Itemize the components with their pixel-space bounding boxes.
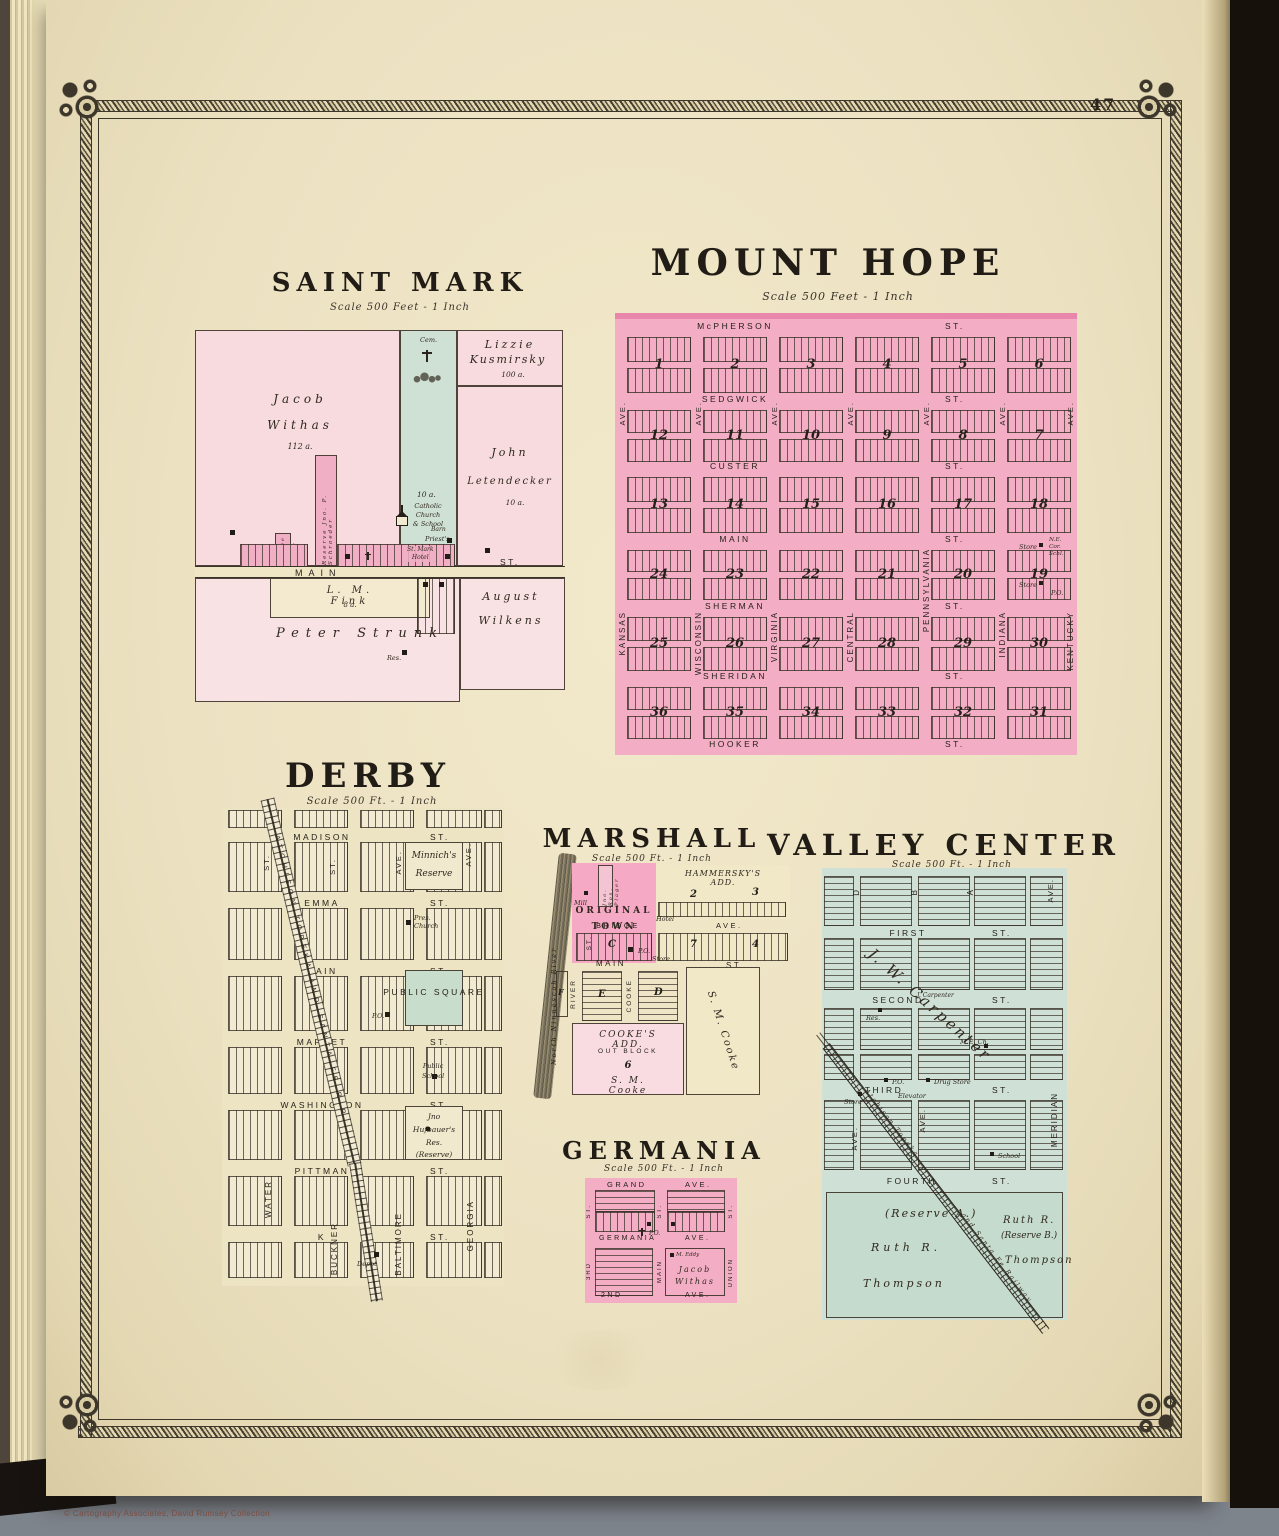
street-vertical: ST. [586, 1204, 592, 1219]
reserve-label: Reserve Jno. P. Schroeder [322, 462, 334, 565]
avenue-name: WATER [264, 1180, 273, 1218]
block: 11 [703, 410, 767, 462]
avenue-vertical: AVE. [464, 842, 473, 867]
hufbauer-reserve: Jno Hufbauer's Res. (Reserve) [405, 1106, 463, 1160]
town-block [484, 976, 502, 1031]
owner-label: Withas [267, 418, 333, 432]
street-vertical: ST. [657, 1204, 663, 1219]
building-square [385, 1012, 390, 1017]
avenue-name: BUCKNER [330, 1222, 339, 1275]
block: 16 [855, 477, 919, 533]
block-number: 7 [1034, 428, 1043, 443]
block-number: 17 [954, 497, 972, 512]
owner-label: John [491, 446, 528, 459]
street-suffix: ST. [992, 1085, 1012, 1095]
hotel-label: St. Mark Hotel [407, 546, 434, 562]
derby-map: MADISONST.EMMAST.MAINST.MARKETST.WASHING… [222, 808, 504, 1286]
town-block [484, 1242, 502, 1278]
block-number: 4 [882, 357, 891, 372]
street-suffix: AVE. [716, 921, 743, 930]
town-block [484, 1176, 502, 1226]
plager-reserve-strip: Jno. Ros. Plager [598, 865, 613, 907]
street-suffix: AVE. [685, 1180, 712, 1189]
parcel-cemetery-church [400, 330, 457, 566]
street-suffix: ST. [945, 739, 965, 749]
frame-corner-ornament [1128, 74, 1182, 128]
copyright: © Cartography Associates, David Rumsey C… [64, 1509, 270, 1518]
page-number: 47 [1090, 95, 1116, 114]
block: 18 [1007, 477, 1071, 533]
block-number: 24 [650, 567, 668, 582]
owner-label: August [482, 590, 539, 603]
building-square [984, 1044, 988, 1048]
town-block [294, 1242, 348, 1278]
derby-scale: Scale 500 Ft. - 1 Inch [307, 796, 438, 807]
book-spine-shadow [0, 0, 10, 1482]
mill-label: Mill [574, 899, 587, 907]
street-suffix: ST. [500, 557, 520, 567]
block-lots [627, 368, 691, 393]
block: 23 [703, 550, 767, 600]
withas-block: M. Eddy Jacob Withas [665, 1248, 725, 1296]
street-vertical: COOKE [626, 979, 633, 1012]
residence-label: Res. [387, 654, 401, 662]
street-name: McPHERSON [655, 321, 815, 331]
town-block [1030, 938, 1063, 990]
frame-bottom [78, 1426, 1182, 1438]
street-vertical: RIVER [570, 979, 577, 1009]
street-name: 2ND [601, 1292, 623, 1299]
street-name: FIRST [848, 928, 968, 938]
town-block [228, 976, 282, 1031]
street-name: SHERMAN [655, 601, 815, 611]
street-vertical: MAIN [657, 1260, 663, 1283]
owner-label: Kusmirsky [470, 353, 546, 366]
school-label: School [998, 1152, 1020, 1160]
street-name: MAIN [596, 959, 626, 968]
block: 21 [855, 550, 919, 600]
block-number: 3 [806, 357, 815, 372]
block-number: 30 [1030, 636, 1048, 651]
owner-label: Lizzie [485, 338, 535, 351]
street-vertical: ST. [728, 1204, 734, 1219]
block: 3 [779, 337, 843, 393]
germania-scale: Scale 500 Ft. - 1 Inch [604, 1164, 724, 1174]
town-block [484, 1110, 502, 1160]
block: 28 [855, 617, 919, 671]
street-suffix: ST. [945, 671, 965, 681]
store-label: Store [844, 1098, 862, 1106]
street-name: PITTMAN [252, 1166, 392, 1176]
acreage-label: 10 a. [506, 498, 525, 507]
town-block [824, 876, 854, 926]
block-lots [667, 1190, 725, 1212]
street-suffix: ST. [992, 1176, 1012, 1186]
derby-title: DERBY [285, 756, 451, 796]
block-number: 28 [878, 636, 896, 651]
book-page-edges [10, 0, 32, 1480]
town-block [294, 842, 348, 892]
mount-hope-title: MOUNT HOPE [651, 242, 1006, 284]
block-lots [1007, 508, 1071, 533]
block: 1 [627, 337, 691, 393]
block: 12 [627, 410, 691, 462]
street-suffix: ST. [430, 898, 450, 908]
town-block [228, 1176, 282, 1226]
owner-label: M. Eddy [676, 1252, 699, 1258]
minnich-reserve: Minnich's Reserve [405, 842, 463, 890]
block: 4 [855, 337, 919, 393]
street-name: THIRD [824, 1085, 944, 1095]
street-name: BRIDGE [596, 921, 640, 930]
avenue-suffix: AVE. [618, 401, 627, 426]
building-square [670, 1253, 674, 1257]
block: 22 [779, 550, 843, 600]
block: 15 [779, 477, 843, 533]
street-name: SEDGWICK [655, 394, 815, 404]
block-number: 14 [726, 497, 744, 512]
street-suffix: ST. [430, 1166, 450, 1176]
street-suffix: ST. [945, 534, 965, 544]
block-lots [779, 368, 843, 393]
block: 24 [627, 550, 691, 600]
street-name: SHERIDAN [655, 671, 815, 681]
church-cross-mark [367, 552, 369, 560]
owner-label: Withas [675, 1277, 715, 1286]
town-block [228, 908, 282, 960]
town-block [426, 810, 482, 828]
hotel-label: Hotel [656, 915, 674, 923]
avenue-name: WISCONSIN [694, 611, 703, 675]
avenue-suffix: AVE. [918, 1108, 927, 1133]
avenue-letter: D [852, 888, 861, 896]
block: 33 [855, 687, 919, 739]
street-name: FOURTH [852, 1176, 972, 1186]
acreage-label: 8 a. [343, 601, 356, 609]
public-square: PUBLIC SQUARE [405, 970, 463, 1026]
hammersky-addition: HAMMERSKY'S ADD. 2 3 [656, 865, 790, 919]
barn-label: Barn [431, 526, 446, 533]
cemetery-label: Cem. [420, 336, 437, 344]
avenue-letter: A [966, 888, 975, 895]
saint-mark-title: SAINT MARK [272, 268, 528, 298]
block: 13 [627, 477, 691, 533]
germania-title: GERMANIA [562, 1136, 766, 1165]
post-office-label: P.O. [1051, 589, 1063, 597]
avenue-suffix: AVE. [694, 401, 703, 426]
block-lots [1007, 368, 1071, 393]
block-letter: D [654, 987, 663, 998]
reserve-label: Jno Hufbauer's Res. (Reserve) [413, 1111, 455, 1162]
avenue-suffix: AVE. [998, 401, 1007, 426]
owner-label: S. M. Cooke [601, 1076, 656, 1096]
block-lots [931, 368, 995, 393]
cookes-addition: COOKE'S ADD. OUT BLOCK 6 S. M. Cooke [572, 1023, 684, 1095]
trees-icon [411, 372, 441, 384]
building-square [406, 920, 411, 925]
town-block [918, 1054, 970, 1080]
building-square [884, 1078, 888, 1082]
frame-corner-ornament [1128, 1384, 1182, 1438]
avenue-letter: B [910, 888, 919, 895]
block-number: 21 [878, 567, 896, 582]
avenue-vertical: ST. [328, 858, 337, 875]
avenue-name: GEORGIA [466, 1200, 475, 1251]
depot-label: Depot [357, 1260, 377, 1268]
town-block [824, 938, 854, 990]
avenue-name: PENNSYLVANIA [922, 548, 931, 632]
building-square [1039, 581, 1043, 585]
schroeder-reserve-strip: Reserve Jno. P. Schroeder [315, 455, 337, 566]
owner-label: Ruth R. [1003, 1215, 1055, 1226]
town-block [484, 842, 502, 892]
saint-mark-scale: Scale 500 Feet - 1 Inch [330, 302, 470, 313]
street-name: CUSTER [655, 461, 815, 471]
block-number: 2 [690, 889, 697, 900]
owner-label: Wilkens [478, 614, 543, 627]
block-number: 15 [802, 497, 820, 512]
street-vertical: 3RD [586, 1262, 592, 1280]
block-number: 11 [726, 428, 744, 443]
frame-right [1170, 100, 1182, 1438]
avenue-name: BALTIMORE [394, 1212, 403, 1276]
block: 29 [931, 617, 995, 671]
street-name: MAIN [295, 568, 342, 578]
block-number: 27 [802, 636, 820, 651]
block-number: 35 [726, 705, 744, 720]
cemetery-cross-icon [426, 350, 428, 362]
block-lots [703, 508, 767, 533]
street-suffix: ST. [945, 461, 965, 471]
avenue-suffix: AVE. [1046, 878, 1055, 903]
building-square [990, 1152, 994, 1156]
owner-label: J. Carpenter [917, 992, 954, 999]
block-number: 36 [650, 705, 668, 720]
block-number: 12 [650, 428, 668, 443]
marshall-map: North Ninnescah River ORIGINAL TOWN Jno.… [540, 855, 795, 1100]
block: 36 [627, 687, 691, 739]
street-suffix: ST. [945, 394, 965, 404]
block-number: 32 [954, 705, 972, 720]
block-number: 6 [625, 1060, 632, 1071]
owner-label: Jacob [679, 1265, 711, 1274]
reserve-label: (Reserve B.) [1001, 1231, 1057, 1241]
main-street-lots [337, 544, 455, 568]
avenue-vertical: ST. [262, 854, 271, 871]
street-suffix: ST. [430, 1037, 450, 1047]
block-lots [658, 902, 786, 917]
block-number: 26 [726, 636, 744, 651]
frame-top [78, 100, 1182, 112]
street-name: EMMA [252, 898, 392, 908]
town-block [974, 938, 1026, 990]
acreage-label: 100 a. [501, 370, 525, 379]
post-office-label: P.O. [372, 1012, 384, 1020]
building-square [447, 538, 452, 543]
town-block [974, 876, 1026, 926]
elevator-label: Elevator [898, 1092, 926, 1100]
avenue-name: MERIDIAN [1050, 1092, 1059, 1147]
block: 32 [931, 687, 995, 739]
post-office-label: P.O. [649, 1230, 660, 1237]
block: 10 [779, 410, 843, 462]
building-square [374, 1252, 379, 1257]
street-name: GERMANIA [599, 1235, 656, 1242]
street-suffix: ST. [992, 928, 1012, 938]
building-square [423, 582, 428, 587]
street-vertical: UNION [728, 1258, 734, 1287]
post-office-label: P.O. [638, 947, 650, 955]
town-block [360, 1047, 414, 1094]
block-number: 2 [730, 357, 739, 372]
street-name: GRAND [607, 1180, 647, 1189]
block-number: 29 [954, 636, 972, 651]
public-square-label: PUBLIC SQUARE [383, 981, 484, 1003]
building-square [230, 530, 235, 535]
building-square [432, 1074, 437, 1079]
main-street-road [195, 566, 565, 578]
block: 17 [931, 477, 995, 533]
avenue-name: CENTRAL [846, 611, 855, 662]
mount-hope-scale: Scale 500 Feet - 1 Inch [762, 290, 914, 303]
block: 31 [1007, 687, 1071, 739]
town-block [860, 876, 912, 926]
block-number: 10 [802, 428, 820, 443]
town-block [294, 810, 348, 828]
avenue-vertical: AVE. [394, 850, 403, 875]
block-lots [779, 508, 843, 533]
block: 35 [703, 687, 767, 739]
owner-label: Peter Strunk [276, 626, 444, 641]
block-lots [931, 508, 995, 533]
block-letter: F [558, 987, 564, 997]
block-number: 16 [878, 497, 896, 512]
block-number: 4 [752, 939, 759, 950]
avenue-name: INDIANA [998, 611, 1007, 657]
owner-label: Thompson [1005, 1255, 1074, 1266]
residence-label: Res. [866, 1014, 880, 1022]
block-number: 7 [690, 939, 697, 950]
post-office-label: P.O. [892, 1078, 904, 1086]
avenue-name: KANSAS [618, 611, 627, 655]
street-suffix: AVE. [685, 1292, 710, 1299]
block-number: 34 [802, 705, 820, 720]
block-number: 18 [1030, 497, 1048, 512]
building-square [1039, 543, 1043, 547]
block: 27 [779, 617, 843, 671]
frame-corner-ornament [54, 1384, 108, 1438]
building-square [926, 1078, 930, 1082]
block-number: 19 [1030, 567, 1048, 582]
owner-label: Ruth R. [871, 1241, 941, 1254]
block-number: 31 [1030, 705, 1048, 720]
saint-mark-map: Jacob Withas 112 a. Cem. 10 a. Catholic … [195, 330, 565, 702]
building-square [584, 891, 588, 895]
block-lots [667, 1212, 725, 1232]
block-number: 5 [958, 357, 967, 372]
owner-label: S. M. Cooke [705, 990, 741, 1072]
book-cover-right [1230, 0, 1279, 1508]
parcel-fink: L. M. Fink 8 a. [270, 578, 430, 618]
block-number: 1 [654, 357, 663, 372]
block-number: 25 [650, 636, 668, 651]
building-square [671, 1222, 675, 1226]
block-number: 6 [1034, 357, 1043, 372]
building-square [402, 650, 407, 655]
main-street-lots [240, 544, 308, 568]
original-town-label: ORIGINAL TOWN [576, 903, 653, 935]
town-block [228, 1242, 282, 1278]
church-cross-mark [641, 1228, 643, 1236]
town-block [228, 1110, 282, 1160]
street-name: WASHINGTON [252, 1100, 392, 1110]
store-label: Store [1019, 543, 1037, 551]
atlas-photo: 47 SAINT MARK Scale 500 Feet - 1 Inch Ja… [0, 0, 1279, 1536]
block-number: 3 [752, 887, 759, 898]
town-block [484, 810, 502, 828]
frame-corner-ornament [54, 74, 108, 128]
valley-center-map: FIRSTST.SECONDST.THIRDST.FOURTHST.DBAAVE… [822, 868, 1067, 1320]
street-name: MAIN [252, 966, 392, 976]
building-square [426, 1127, 430, 1131]
block: 2 [703, 337, 767, 393]
block-lots [595, 1248, 653, 1296]
street-name: HOOKER [655, 739, 815, 749]
church-label: Pres. Church [414, 914, 438, 931]
block-lots [855, 508, 919, 533]
reserve-label: Jno. Ros. Plager [602, 868, 620, 906]
block-number: 20 [954, 567, 972, 582]
block-lots [627, 508, 691, 533]
frame-left [80, 100, 92, 1438]
town-block [860, 1054, 912, 1080]
avenue-suffix: AVE. [922, 401, 931, 426]
block: 9 [855, 410, 919, 462]
addition-label: HAMMERSKY'S ADD. [685, 869, 761, 887]
valley-center-title: VALLEY CENTER [767, 828, 1121, 862]
block-number: 13 [650, 497, 668, 512]
block: 26 [703, 617, 767, 671]
store-label: Store [1019, 581, 1037, 589]
block-lots [595, 1212, 655, 1232]
acreage-label: 112 a. [287, 442, 312, 451]
town-block [360, 908, 414, 960]
block-number: 23 [726, 567, 744, 582]
street-suffix: ST. [430, 1232, 450, 1242]
building-square [439, 582, 444, 587]
corner-note: N.E. Cor. Schl. [1049, 537, 1064, 559]
town-block [294, 1176, 348, 1226]
building-square [878, 1008, 882, 1012]
town-block [360, 810, 414, 828]
store-label: Store [652, 955, 670, 963]
drug-store-label: Drug Store [934, 1078, 971, 1086]
block-lots [658, 933, 788, 961]
block-letter: C [608, 939, 616, 950]
building-square [345, 554, 350, 559]
reserve-label: Minnich's Reserve [412, 847, 457, 883]
acreage-label: 10 a. [417, 490, 436, 499]
block-number: 22 [802, 567, 820, 582]
block-lots [703, 368, 767, 393]
town-block [484, 1047, 502, 1094]
church-label: Catholic Church & School [413, 502, 443, 528]
addition-label: COOKE'S ADD. [599, 1030, 657, 1050]
block: 14 [703, 477, 767, 533]
mh-grid: McPHERSONST.SEDGWICKST.CUSTERST.MAINST.S… [615, 313, 1077, 755]
block-number: 8 [958, 428, 967, 443]
owner-label: Jacob [273, 392, 327, 406]
